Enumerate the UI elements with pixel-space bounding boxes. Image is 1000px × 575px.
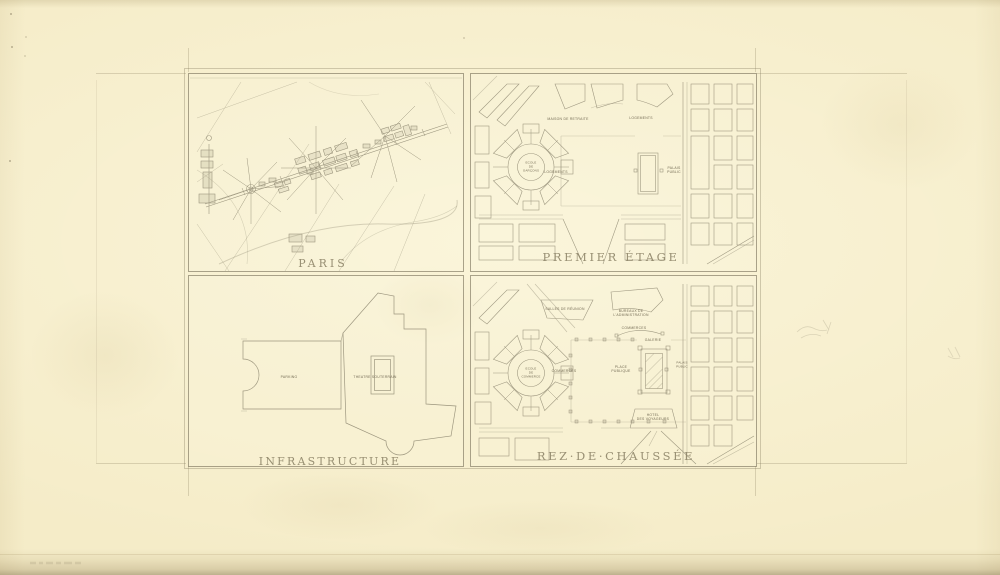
label-logements-haut: LOGEMENTS [629,116,653,120]
guide-line [96,73,186,74]
paris-map-lines [190,78,462,271]
label-commerces-haut: COMMERCES [622,326,647,330]
paper-stain [240,470,440,540]
label-galerie: GALERIE [645,338,661,342]
label-bureaux-administration: BUREAUX DE L'ADMINISTRATION [613,309,648,318]
paris-map-drawing [189,74,463,271]
quadrant-infrastructure: PARKING THEATRE SOUTERRAIN INFRASTRUCTUR… [188,275,464,467]
quadrant-paris: PARIS [188,73,464,272]
label-place-publique: PLACE PUBLIQUE [611,365,630,374]
paper-speck [10,13,12,15]
guide-line [188,466,189,496]
infrastructure-plan-drawing [189,276,463,466]
guide-line [96,463,186,464]
guide-line [755,466,756,496]
guide-line [96,80,97,463]
title-paris: PARIS [283,257,363,270]
title-premier-etage: PREMIER ÉTAGE [511,250,711,264]
label-ecole-commerce: ECOLE DE COMMERCE [521,367,540,378]
quadrant-rez-de-chaussee: SALLES DE RÉUNION BUREAUX DE L'ADMINISTR… [470,275,757,467]
pencil-smudge [793,312,845,346]
infrastructure-lines [241,293,456,455]
guide-line [757,73,907,74]
label-hotel: HOTEL DES VOYAGEURS [637,413,669,422]
paper-stain [820,60,980,190]
label-palais-public: PALAIS PUBLIC [667,166,681,175]
label-salles-de-reunion: SALLES DE RÉUNION [545,307,584,311]
pencil-mark [945,344,967,360]
paper-speck [24,55,26,57]
label-palais-public: PALAIS PUBLIC [676,361,688,369]
aged-paper-sheet: PARIS [0,0,1000,575]
label-ecole: ECOLE DE GARÇONS [523,161,539,172]
guide-line [906,80,907,463]
label-commerces: COMMERCES [552,369,577,373]
paper-top-shadow [0,0,1000,8]
paper-stain [420,500,660,556]
label-logements: LOGEMENTS [544,170,568,174]
title-rez-de-chaussee: REZ·DE·CHAUSSÉE [516,449,716,463]
title-infrastructure: INFRASTRUCTURE [250,455,410,468]
paper-speck [25,36,27,38]
premier-etage-lines [473,76,754,264]
paper-stain [30,290,180,420]
premier-etage-plan-drawing [471,74,756,271]
paper-bottom-shadow [0,549,1000,575]
paper-speck [463,37,465,39]
label-maison-de-retraite: MAISON DE RETRAITE [547,117,588,121]
label-theatre-souterrain: THEATRE SOUTERRAIN [353,375,396,379]
quadrant-premier-etage: MAISON DE RETRAITE LOGEMENTS ECOLE DE GA… [470,73,757,272]
paper-speck [11,46,13,48]
paper-speck [9,160,11,162]
label-parking: PARKING [281,375,298,379]
guide-line [757,463,907,464]
